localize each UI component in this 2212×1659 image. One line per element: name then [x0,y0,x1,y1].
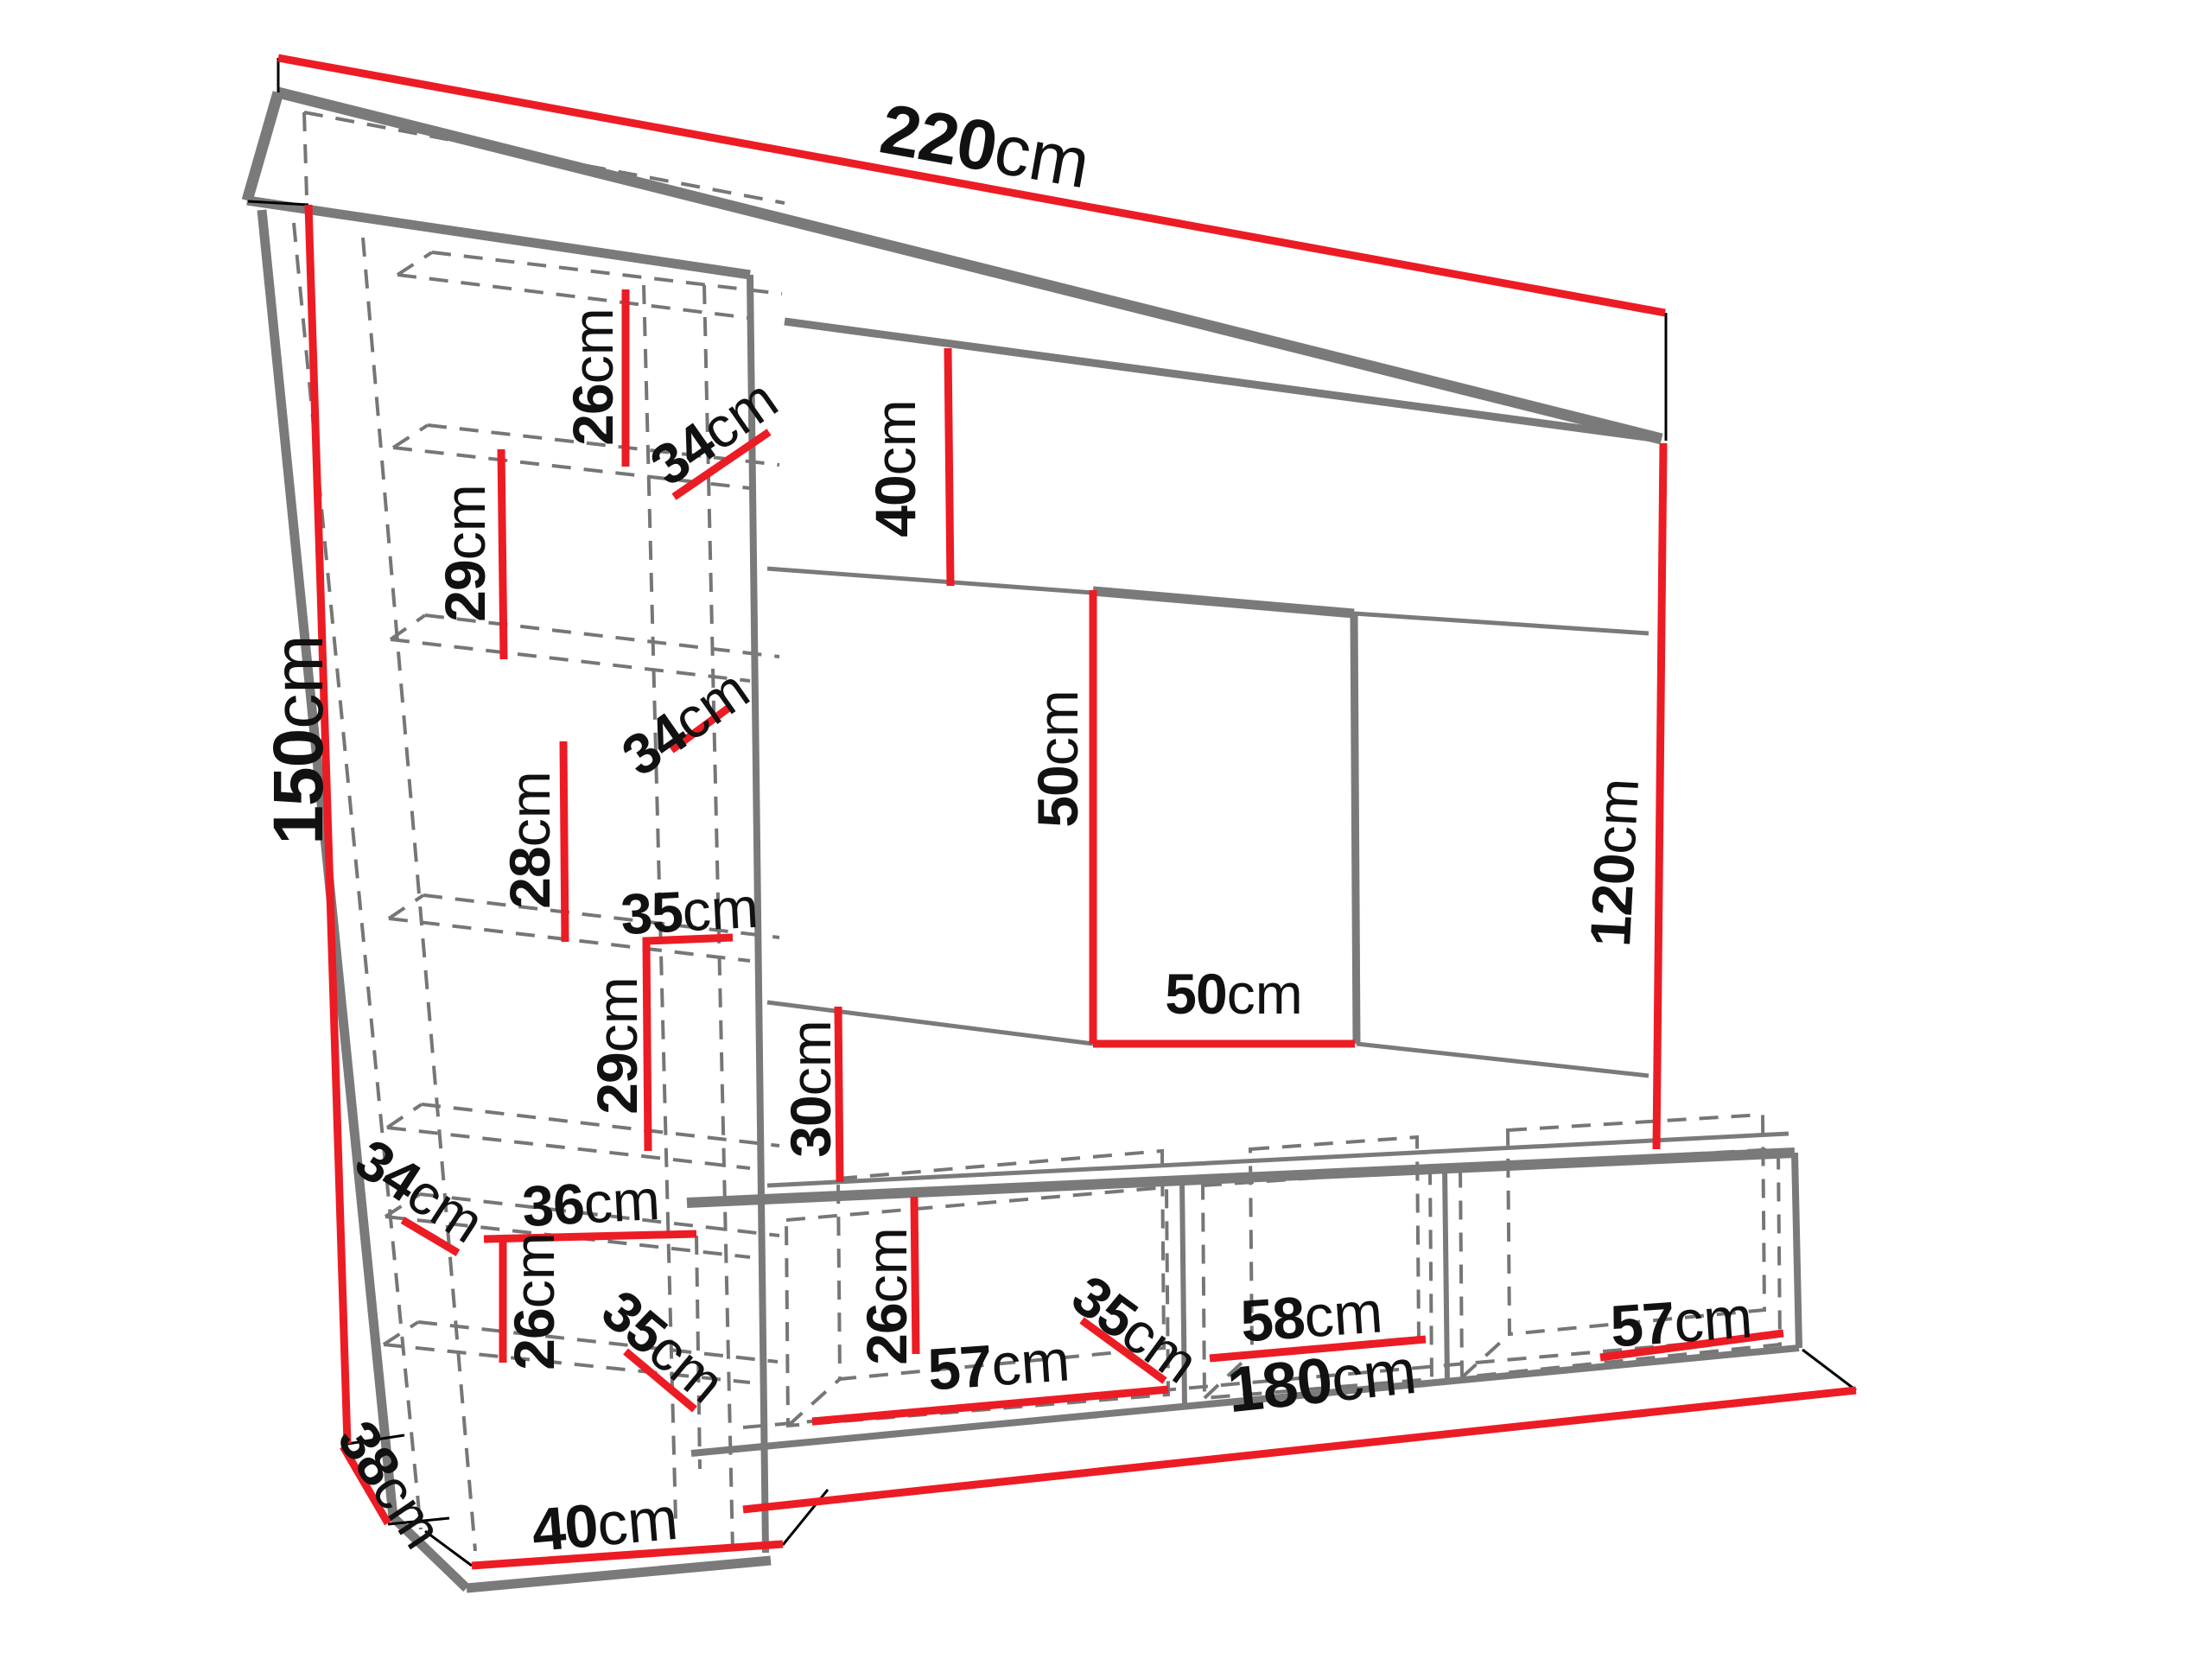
dim-label-28: 28cm [501,771,558,908]
dim-label-26-bench: 26cm [858,1227,915,1364]
dim-unit: cm [1327,1335,1420,1415]
dim-value: 57 [1608,1290,1676,1360]
dim-unit: cm [863,399,927,475]
dim-value: 36 [520,1171,585,1238]
dim-label-35-bench-mid: 35cm [1063,1265,1208,1392]
dim-unit: cm [594,1484,681,1559]
dim-label-35-bench-left: 35cm [593,1280,735,1412]
dim-label-35-shelf: 35cm [620,879,760,943]
dimension-labels: 220cm150cm26cm34cm29cm34cm40cm28cm35cm29… [0,0,2212,1659]
dim-label-34-bottom-left: 34cm [346,1129,493,1252]
dim-value: 57 [925,1333,994,1403]
dim-value: 26 [561,384,625,445]
diagram-canvas: 220cm150cm26cm34cm29cm34cm40cm28cm35cm29… [0,0,2212,1659]
dim-value: 180 [1224,1344,1335,1426]
dim-unit: cm [259,634,338,728]
dim-label-220: 220cm [875,94,1095,200]
dim-value: 26 [855,1303,918,1364]
dim-unit: cm [582,1167,662,1236]
dim-label-34-mid: 34cm [613,659,758,785]
dim-value: 35 [619,879,683,946]
dim-value: 29 [585,1052,649,1114]
dim-label-180: 180cm [1224,1339,1420,1422]
dim-label-120: 120cm [1581,777,1647,948]
dim-label-150: 150cm [264,634,334,844]
dim-unit: cm [585,976,649,1052]
dim-unit: cm [1672,1284,1755,1355]
dim-label-26-top: 26cm [564,308,621,445]
dim-unit: cm [498,771,562,847]
dim-value: 50 [1026,766,1090,827]
dim-label-38: 38cm [328,1411,453,1557]
dim-label-57-bench-3: 57cm [1609,1287,1755,1356]
dim-value: 50 [1165,962,1226,1026]
dim-value: 40 [863,475,927,537]
dim-value: 220 [874,90,1002,188]
dim-label-57-bench-1: 57cm [926,1331,1072,1399]
dim-label-26-left-bottom: 26cm [505,1232,563,1370]
dim-value: 26 [502,1308,566,1370]
dim-unit: cm [1227,962,1303,1026]
dim-value: 150 [259,729,338,845]
dim-label-40-base: 40cm [530,1488,681,1560]
dim-label-30: 30cm [782,1020,839,1157]
dim-label-50-v: 50cm [1029,690,1086,827]
dim-value: 40 [529,1491,600,1564]
dim-label-29-lower: 29cm [588,976,645,1114]
dim-unit: cm [989,1327,1072,1398]
dim-unit: cm [1026,690,1090,766]
dim-value: 28 [498,847,562,908]
dim-label-36: 36cm [521,1171,662,1235]
dim-value: 30 [779,1096,842,1157]
dim-unit: cm [433,484,497,560]
dim-unit: cm [1583,777,1651,856]
dim-unit: cm [855,1227,918,1303]
dim-unit: cm [561,308,625,384]
dim-label-40-upper: 40cm [867,399,924,537]
dim-unit: cm [988,110,1095,204]
dim-label-50-h: 50cm [1165,965,1302,1022]
dim-value: 58 [1238,1285,1306,1355]
dim-value: 120 [1578,853,1647,949]
dim-value: 29 [433,560,497,621]
dim-label-29-upper: 29cm [436,484,493,621]
dim-unit: cm [681,875,760,944]
dim-unit: cm [502,1232,566,1308]
dim-unit: cm [779,1020,842,1096]
dim-label-34-top: 34cm [641,369,786,494]
